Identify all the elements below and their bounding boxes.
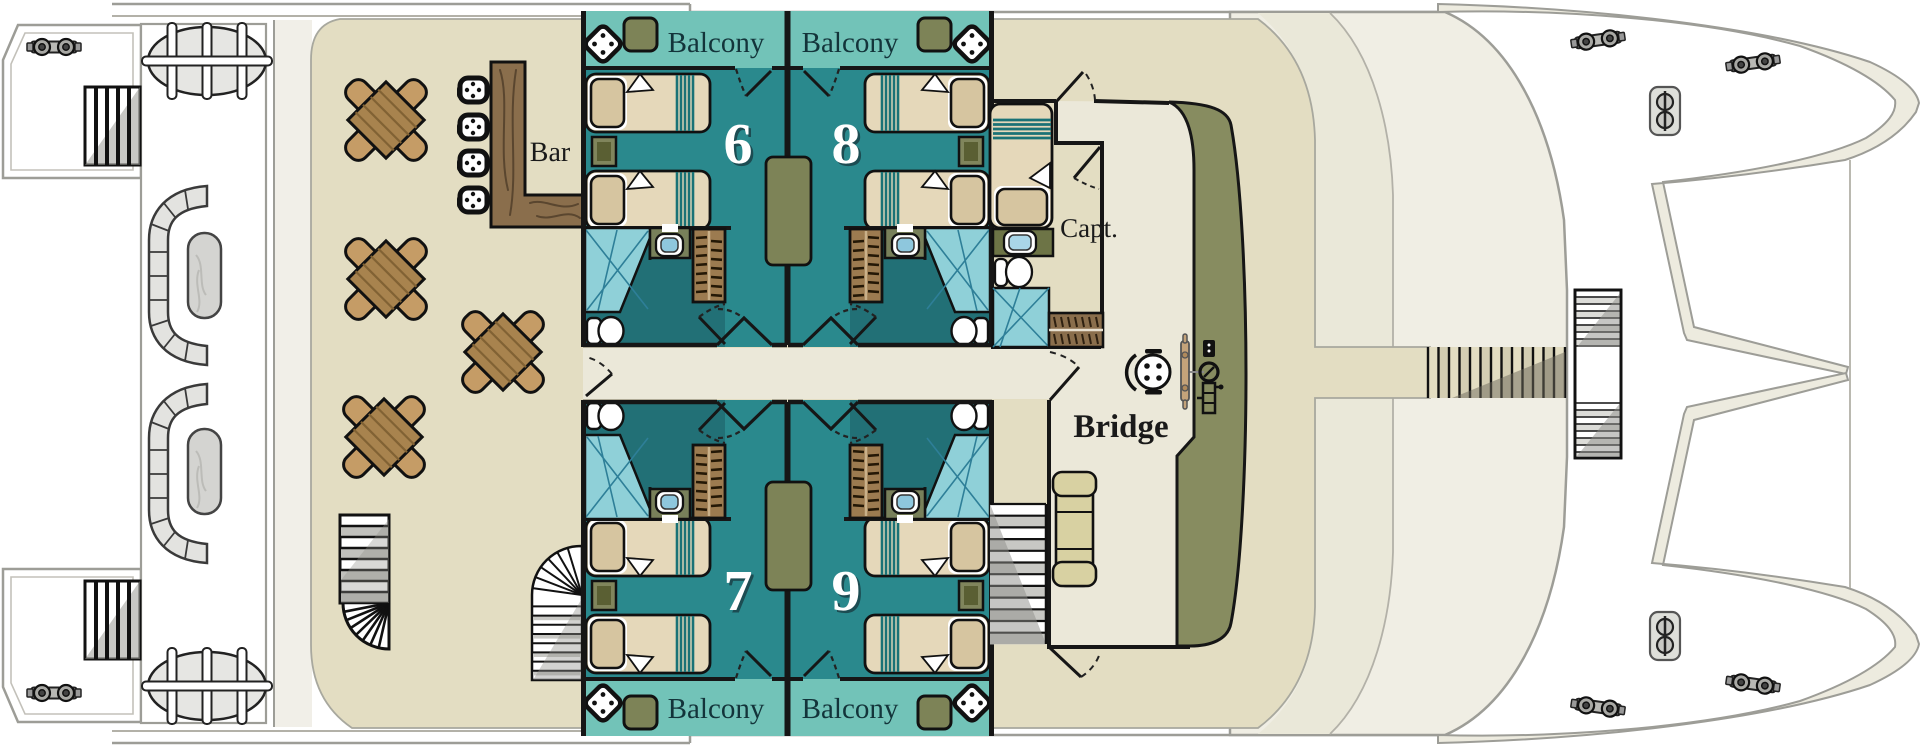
svg-text:9: 9 xyxy=(832,558,861,623)
svg-text:Balcony: Balcony xyxy=(668,27,765,59)
svg-text:8: 8 xyxy=(832,111,861,176)
svg-text:Bridge: Bridge xyxy=(1073,409,1168,445)
svg-text:Capt.: Capt. xyxy=(1060,213,1118,243)
svg-text:Balcony: Balcony xyxy=(802,27,899,59)
svg-text:Balcony: Balcony xyxy=(668,693,765,725)
svg-text:7: 7 xyxy=(724,558,753,623)
svg-text:Balcony: Balcony xyxy=(802,693,899,725)
svg-text:Bar: Bar xyxy=(530,137,571,168)
svg-text:6: 6 xyxy=(724,111,753,176)
